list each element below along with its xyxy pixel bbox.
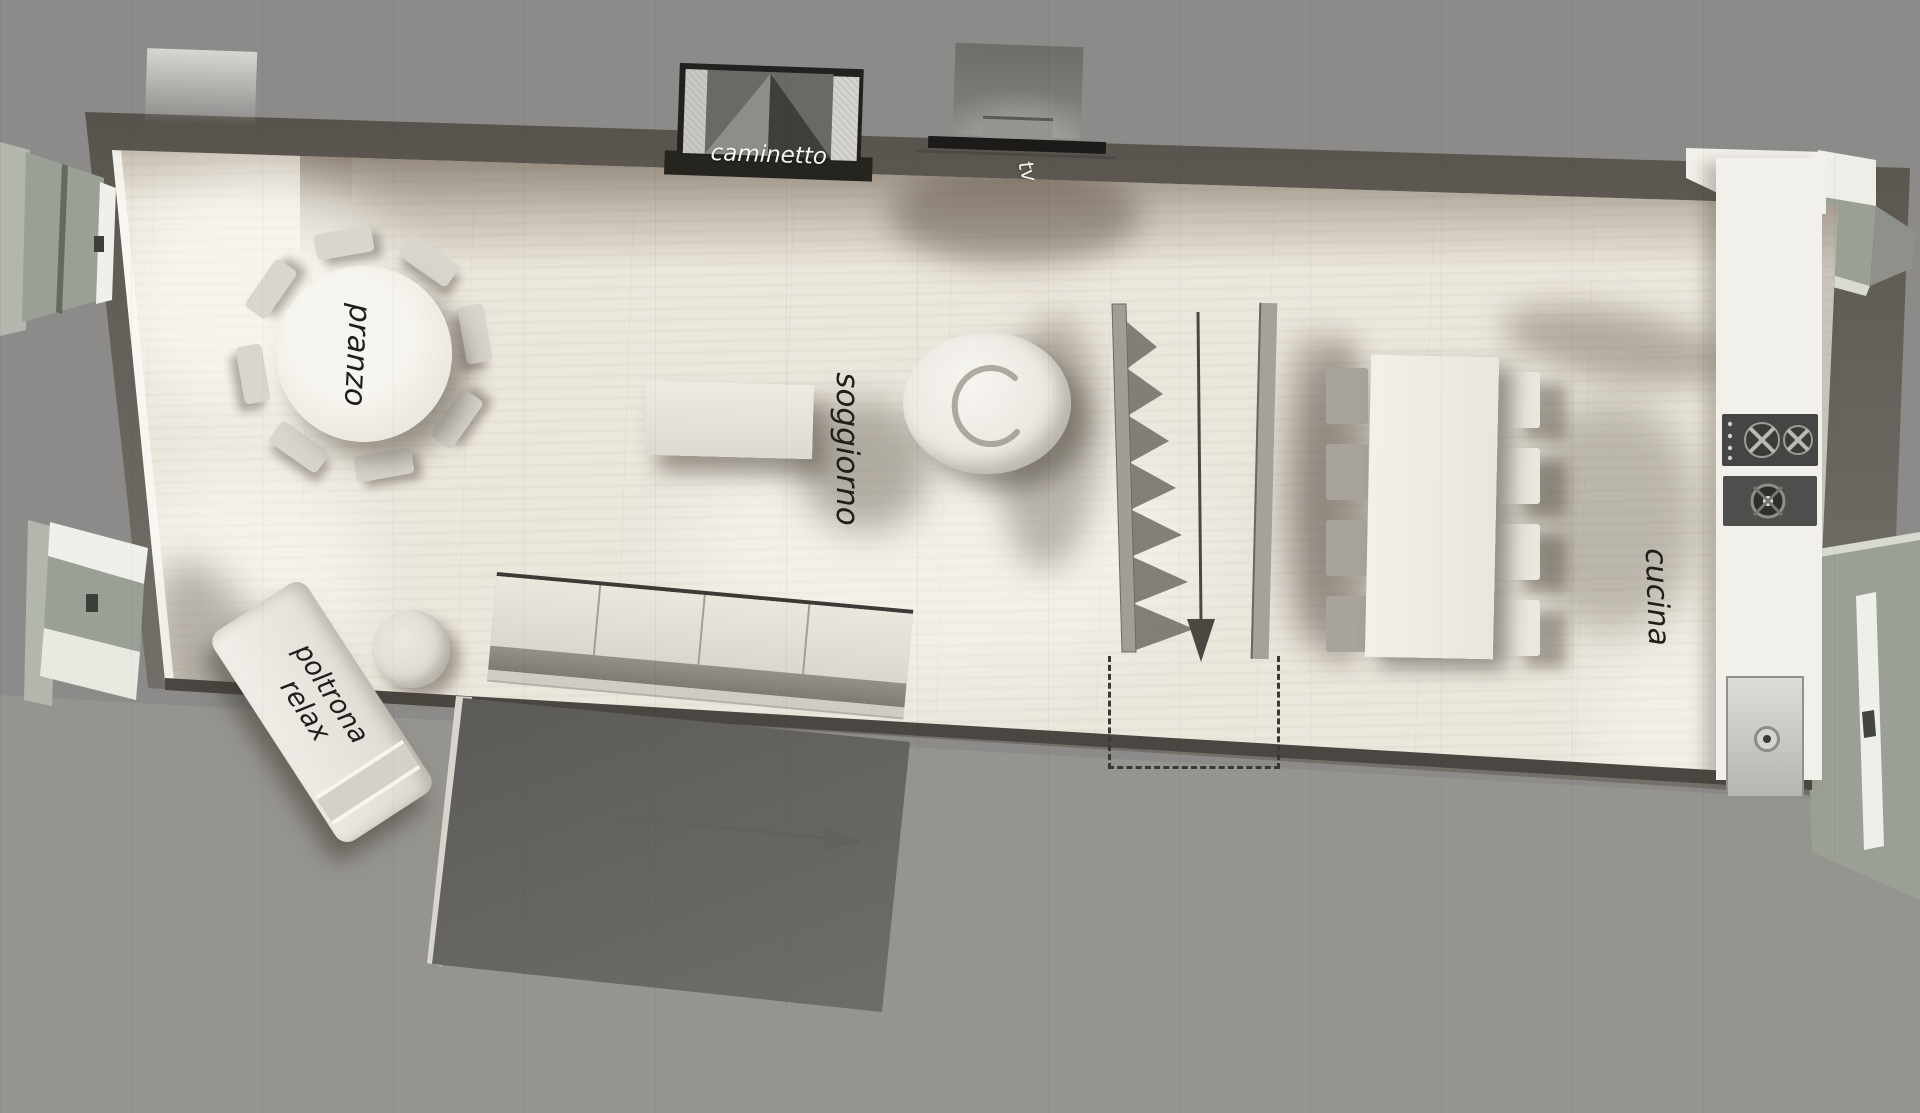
stairs-down-arrow <box>1178 302 1224 674</box>
stairs-landing-dashed <box>1108 656 1280 769</box>
kitchen-chair-left <box>1326 596 1368 652</box>
kitchen-sink <box>1726 676 1804 798</box>
coffee-table <box>644 381 814 459</box>
kitchen-label: cucina <box>1638 548 1676 647</box>
fireplace: caminetto <box>662 54 878 183</box>
sofa-cushion <box>804 605 913 684</box>
kitchen-chair-left <box>1326 520 1368 576</box>
window-handle <box>94 236 104 252</box>
side-table <box>372 610 450 688</box>
dining-label: pranzo <box>337 303 377 408</box>
kitchen-chair-right <box>1498 372 1540 428</box>
cooktop <box>1720 412 1820 532</box>
tv-unit: tv <box>948 39 1145 256</box>
kitchen-chair-right <box>1498 448 1540 504</box>
window-handle <box>86 594 98 612</box>
sofa-cushion <box>490 576 599 655</box>
kitchen-chair-left <box>1326 368 1368 424</box>
pouf-armchair <box>903 332 1071 474</box>
tv-label: tv <box>1013 158 1042 184</box>
wall-pier-highlight <box>145 48 258 126</box>
fireplace-pillar-right <box>831 76 860 161</box>
pouf-swirl <box>903 332 1071 474</box>
kitchen-chair-right <box>1498 600 1540 656</box>
sofa-cushion <box>595 585 704 664</box>
fireplace-pillar-left <box>683 69 708 154</box>
sofa-cushion <box>699 595 808 674</box>
fireplace-label: caminetto <box>710 140 827 170</box>
living-label: soggiorno <box>829 372 865 525</box>
kitchen-dining-table <box>1365 355 1499 660</box>
kitchen-chair-right <box>1498 524 1540 580</box>
entry-direction-arrow <box>470 786 900 876</box>
kitchen-chair-left <box>1326 444 1368 500</box>
sink-drain <box>1754 726 1780 752</box>
